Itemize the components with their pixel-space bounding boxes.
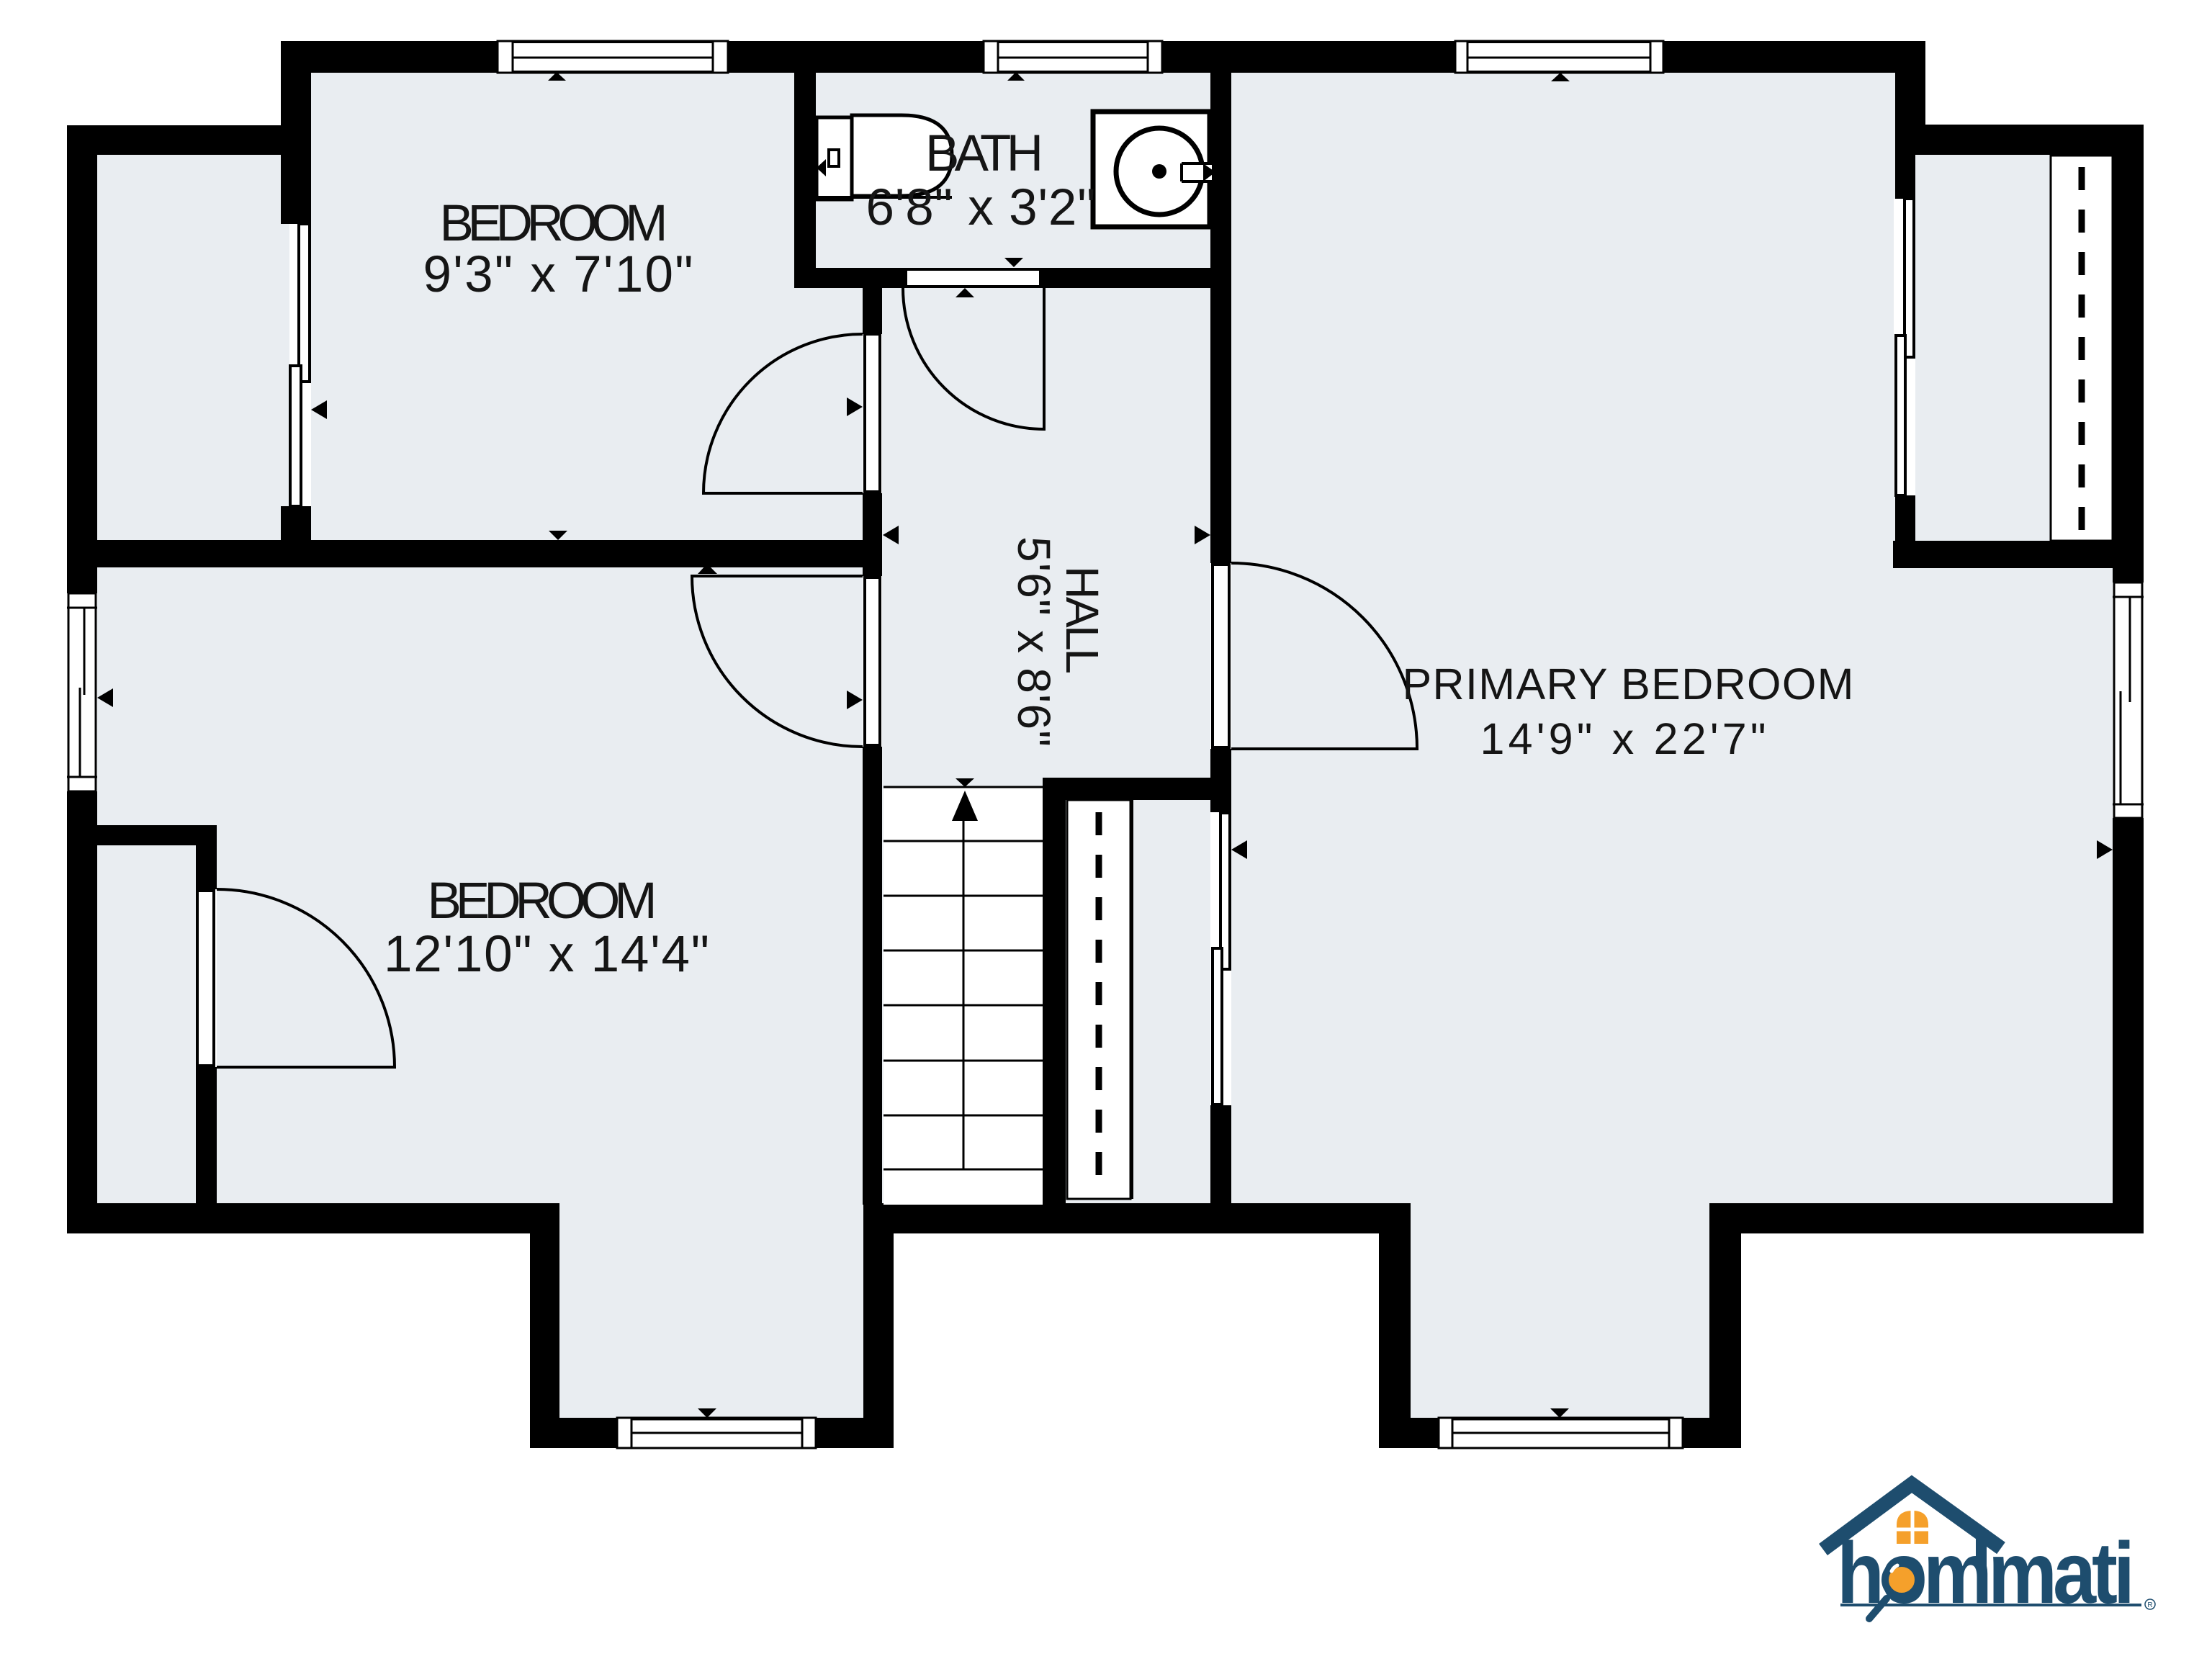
svg-text:R: R [2147,1601,2152,1609]
svg-text:5'6" x 8'6": 5'6" x 8'6" [1008,536,1060,747]
svg-text:BEDROOM: BEDROOM [428,873,657,930]
svg-text:14'9" x 22'7": 14'9" x 22'7" [1480,714,1766,763]
svg-text:BATH: BATH [925,125,1043,182]
svg-text:PRIMARY BEDROOM: PRIMARY BEDROOM [1403,660,1854,709]
svg-text:BEDROOM: BEDROOM [440,195,668,252]
svg-text:6'8" x 3'2": 6'8" x 3'2" [866,179,1096,236]
svg-text:HALL: HALL [1056,566,1108,674]
